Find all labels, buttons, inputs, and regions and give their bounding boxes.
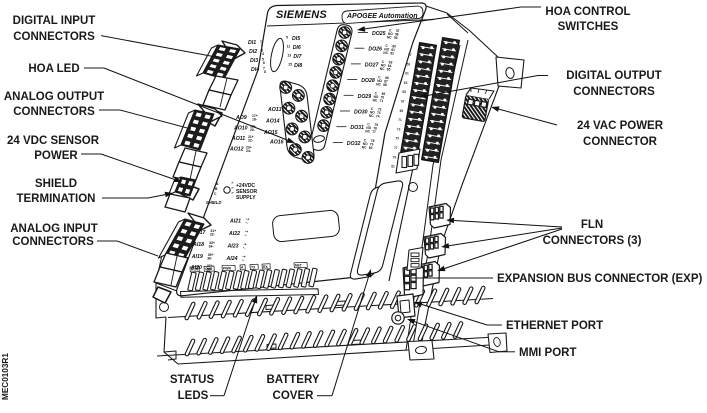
svg-text:CONNECTORS: CONNECTORS — [13, 106, 95, 118]
svg-text:HOA CONTROL: HOA CONTROL — [545, 6, 630, 18]
svg-text:80: 80 — [369, 146, 373, 150]
svg-text:PWR: PWR — [223, 266, 231, 270]
svg-text:20-: 20- — [250, 128, 255, 132]
svg-text:DI4: DI4 — [251, 67, 259, 73]
svg-text:24 VDC SENSOR: 24 VDC SENSOR — [7, 135, 100, 147]
svg-text:DI2: DI2 — [249, 49, 257, 55]
svg-text:AO13: AO13 — [267, 107, 282, 113]
svg-text:AI22: AI22 — [228, 231, 240, 237]
svg-text:DO29: DO29 — [358, 94, 372, 100]
svg-text:8: 8 — [264, 70, 266, 74]
svg-text:36-: 36- — [207, 257, 212, 261]
svg-text:AI21: AI21 — [229, 219, 241, 225]
svg-text:NC: NC — [383, 51, 388, 55]
svg-text:MEC0103R1: MEC0103R1 — [1, 353, 10, 400]
svg-text:NC: NC — [387, 36, 392, 40]
svg-text:DIGITAL OUTPUT: DIGITAL OUTPUT — [566, 70, 661, 82]
svg-text:ETHERNET PORT: ETHERNET PORT — [506, 320, 603, 332]
svg-text:º-: º- — [242, 259, 244, 263]
svg-text:81: 81 — [391, 165, 395, 169]
svg-text:NC: NC — [376, 83, 381, 87]
svg-text:SHIELD: SHIELD — [206, 200, 221, 205]
svg-text:º-: º- — [245, 234, 247, 238]
svg-text:6: 6 — [263, 61, 265, 65]
svg-text:77: 77 — [372, 130, 376, 134]
svg-text:DI1: DI1 — [248, 40, 256, 46]
svg-text:CONNECTORS: CONNECTORS — [13, 31, 95, 43]
svg-text:MMI PORT: MMI PORT — [519, 347, 577, 359]
svg-text:74: 74 — [376, 115, 380, 119]
svg-text:DO28: DO28 — [361, 78, 375, 84]
svg-text:TERMINATION: TERMINATION — [16, 193, 95, 205]
svg-text:EXPANSION BUS CONNECTOR (EXP): EXPANSION BUS CONNECTOR (EXP) — [497, 273, 702, 285]
svg-text:4: 4 — [262, 52, 264, 56]
svg-text:18-: 18- — [252, 118, 257, 122]
svg-text:NC: NC — [362, 145, 367, 149]
svg-text:AI24: AI24 — [226, 256, 238, 262]
svg-text:63: 63 — [404, 81, 408, 85]
svg-text:DIGITAL INPUT: DIGITAL INPUT — [13, 15, 96, 27]
svg-text:NC: NC — [373, 98, 378, 102]
svg-text:SHIELD: SHIELD — [35, 178, 77, 190]
svg-text:AO10: AO10 — [233, 126, 248, 132]
svg-text:71: 71 — [398, 118, 402, 122]
svg-text:POWER: POWER — [34, 150, 78, 162]
svg-text:STATUS: STATUS — [170, 374, 215, 386]
svg-text:ANALOG OUTPUT: ANALOG OUTPUT — [4, 91, 104, 103]
svg-text:ANALOG INPUT: ANALOG INPUT — [10, 223, 98, 235]
svg-text:COVER: COVER — [273, 390, 315, 402]
svg-text:73: 73 — [397, 127, 401, 131]
svg-text:OVR: OVR — [205, 267, 213, 271]
svg-text:RUN: RUN — [191, 268, 199, 272]
svg-text:LEDS: LEDS — [178, 390, 209, 402]
svg-text:DI6: DI6 — [293, 45, 301, 51]
svg-text:DI3: DI3 — [250, 58, 258, 64]
svg-text:DO26: DO26 — [368, 47, 382, 53]
svg-text:AO16: AO16 — [269, 140, 284, 146]
svg-text:AI23: AI23 — [227, 244, 239, 250]
svg-text:AO11: AO11 — [231, 136, 245, 142]
svg-text:24-: 24- — [246, 149, 251, 153]
svg-text:DI8: DI8 — [294, 63, 302, 69]
svg-text:NC: NC — [365, 130, 370, 134]
svg-text:AO12: AO12 — [229, 147, 244, 153]
svg-text:SUPPLY: SUPPLY — [236, 195, 256, 201]
svg-text:AI19: AI19 — [191, 254, 203, 260]
svg-text:CONNECTORS: CONNECTORS — [12, 236, 94, 248]
svg-text:68: 68 — [383, 83, 387, 87]
svg-text:RX: RX — [263, 265, 268, 269]
svg-text:NC: NC — [380, 67, 385, 71]
svg-text:24 VAC POWER: 24 VAC POWER — [577, 120, 664, 132]
svg-text:BATTERY: BATTERY — [266, 374, 319, 386]
svg-text:67: 67 — [401, 100, 405, 104]
svg-text:59: 59 — [394, 36, 398, 40]
svg-text:DI7: DI7 — [293, 54, 302, 60]
svg-text:CONNECTOR: CONNECTOR — [583, 136, 658, 148]
svg-text:71: 71 — [380, 99, 384, 103]
svg-text:15: 15 — [288, 63, 292, 67]
svg-text:65: 65 — [387, 67, 391, 71]
svg-text:HOA LED: HOA LED — [28, 63, 79, 75]
svg-text:SWITCHES: SWITCHES — [558, 21, 619, 33]
svg-text:NC: NC — [369, 114, 374, 118]
svg-text:SIEMENS: SIEMENS — [276, 9, 327, 21]
svg-text:CONNECTORS: CONNECTORS — [573, 86, 655, 98]
svg-text:22-: 22- — [248, 139, 253, 143]
svg-text:DO27: DO27 — [365, 62, 380, 68]
svg-text:APOGEE Automation: APOGEE Automation — [346, 13, 418, 20]
svg-text:5: 5 — [286, 36, 288, 40]
svg-text:DI5: DI5 — [292, 36, 300, 42]
svg-text:DO30: DO30 — [354, 110, 368, 116]
svg-text:2: 2 — [261, 43, 263, 47]
svg-text:CONNECTORS (3): CONNECTORS (3) — [543, 235, 642, 247]
svg-text:FLN: FLN — [581, 219, 603, 231]
svg-text:DO32: DO32 — [347, 141, 361, 147]
svg-text:34-: 34- — [209, 245, 214, 249]
svg-text:65: 65 — [402, 90, 406, 94]
svg-text:DO31: DO31 — [350, 125, 364, 131]
svg-text:75: 75 — [395, 137, 399, 141]
svg-text:77: 77 — [394, 146, 398, 150]
svg-text:79: 79 — [393, 155, 397, 159]
svg-text:11: 11 — [287, 45, 291, 49]
svg-text:62: 62 — [390, 52, 394, 56]
svg-text:61: 61 — [405, 72, 409, 76]
svg-text:13: 13 — [287, 54, 291, 58]
svg-text:NET: NET — [295, 264, 303, 268]
svg-text:32-: 32- — [210, 232, 215, 236]
svg-text:AO14: AO14 — [265, 119, 280, 125]
svg-text:59: 59 — [407, 62, 411, 66]
svg-text:57: 57 — [408, 53, 412, 57]
svg-text:TX: TX — [251, 265, 256, 269]
svg-text:º-: º- — [243, 246, 245, 250]
svg-text:º-: º- — [246, 221, 248, 225]
svg-text:DO25: DO25 — [372, 31, 386, 37]
svg-text:69: 69 — [400, 109, 404, 113]
